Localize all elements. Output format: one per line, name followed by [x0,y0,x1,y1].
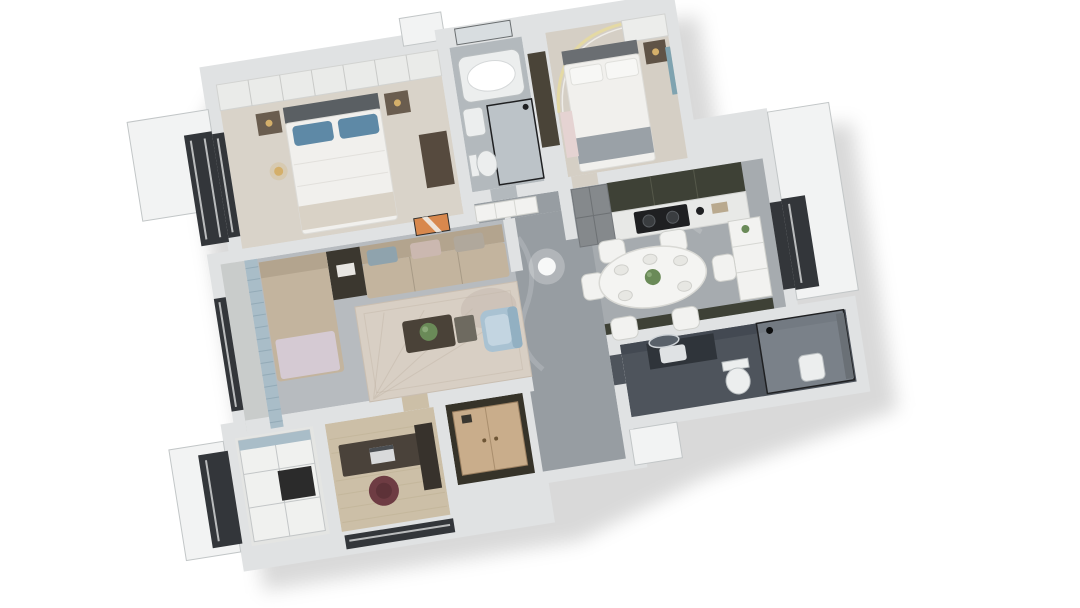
apartment-floorplan-3d-render [0,0,1080,608]
dining-chair-4 [671,306,700,332]
cabinet-top-decor [461,414,472,423]
master-bed [283,93,398,234]
dining-chair-6 [711,253,737,282]
entry-hall [452,402,527,476]
coffee-table-grey-tier [454,315,478,344]
blue-armchair [479,306,523,353]
bathroom-sink [462,107,486,138]
floorplan-render-canvas [0,0,1080,608]
study-closet [238,430,325,542]
front-door-step [629,422,682,465]
shower-bench-fixture [798,353,826,382]
armchair-seat [484,313,512,346]
dining-chair-3 [610,315,639,341]
closet-tv-dark-panel [278,466,316,501]
